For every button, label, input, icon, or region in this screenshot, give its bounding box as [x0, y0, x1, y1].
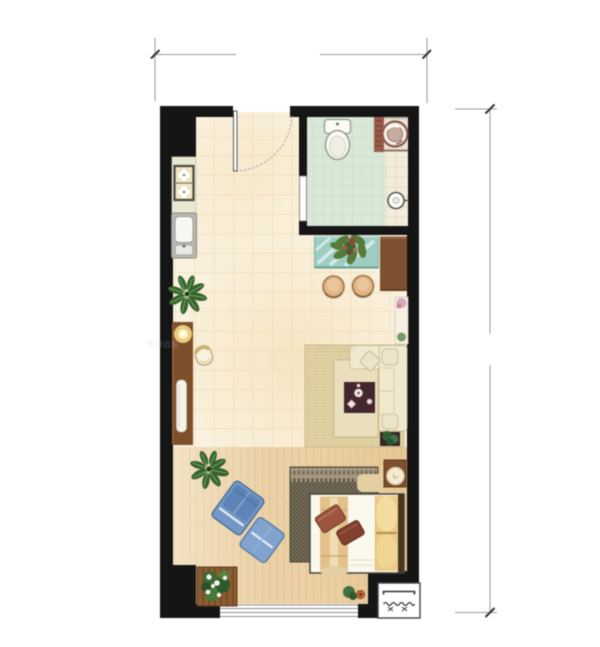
svg-text:· 聚优房美宅 ·: · 聚优房美宅 · — [312, 344, 362, 354]
svg-text:明源云客: 明源云客 — [147, 339, 179, 349]
